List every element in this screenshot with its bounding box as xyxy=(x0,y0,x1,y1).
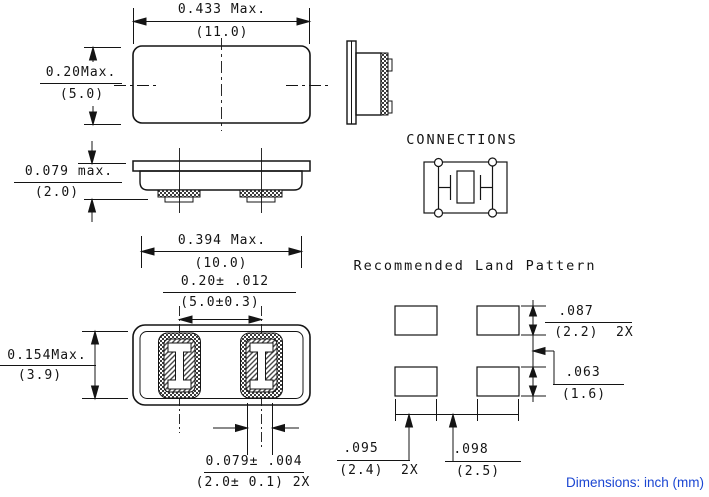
end-view xyxy=(347,41,392,124)
dim-bottom-height-inch: 0.154Max. xyxy=(7,348,86,363)
pin-circle xyxy=(435,209,443,217)
dim-top-height-inch: 0.20Max. xyxy=(46,65,117,80)
dim-top-width-inch: 0.433 Max. xyxy=(178,2,266,17)
dim-land-col-gap-inch: .098 xyxy=(453,442,488,457)
dim-side-height-lines xyxy=(14,141,148,222)
dim-side-height-mm: (2.0) xyxy=(35,185,79,200)
dim-bottom-width-inch: 0.394 Max. xyxy=(178,233,266,248)
dim-land-pad-height-mm: (2.2) 2X xyxy=(554,325,633,340)
land-pad xyxy=(395,367,437,396)
dim-land-pad-width-inch: .095 xyxy=(343,441,378,456)
dim-pad-width-mm: (2.0± 0.1) 2X xyxy=(196,475,311,490)
land-pattern xyxy=(395,306,519,396)
connections-schematic xyxy=(424,158,507,217)
side-pad-left xyxy=(158,190,200,197)
pin-circle xyxy=(489,209,497,217)
dim-bottom-height-mm: (3.9) xyxy=(18,368,62,383)
dim-side-height-inch: 0.079 max. xyxy=(25,164,113,179)
dim-top-height-mm: (5.0) xyxy=(60,87,104,102)
units-note: Dimensions: inch (mm) xyxy=(566,475,704,490)
dim-top-width-mm: (11.0) xyxy=(196,25,249,40)
dim-top-height-lines xyxy=(40,48,122,125)
dim-land-row-gap-inch: .063 xyxy=(565,365,600,380)
connections-title: CONNECTIONS xyxy=(406,132,517,148)
bottom-pad-left xyxy=(159,333,201,398)
land-pattern-title: Recommended Land Pattern xyxy=(353,258,596,274)
dim-land-row-gap-mm: (1.6) xyxy=(562,387,606,402)
dim-land-pad-height-inch: .087 xyxy=(558,304,593,319)
dim-pad-pitch-inch: 0.20± .012 xyxy=(181,274,269,289)
top-view xyxy=(114,38,330,131)
pin-circle xyxy=(489,158,497,166)
dim-pad-pitch-mm: (5.0±0.3) xyxy=(180,295,259,310)
side-pad-right xyxy=(240,190,282,197)
dim-bottom-width-mm: (10.0) xyxy=(195,256,248,271)
pin-circle xyxy=(435,159,443,167)
land-pad xyxy=(477,367,519,396)
dim-pad-width-inch: 0.079± .004 xyxy=(205,454,302,469)
dim-bottom-height-lines xyxy=(0,332,128,399)
bottom-pad-right xyxy=(241,333,283,398)
side-view xyxy=(133,148,310,213)
dim-land-pad-width-mm: (2.4) 2X xyxy=(339,463,418,478)
crystal-symbol xyxy=(439,171,493,203)
land-pad xyxy=(477,306,519,335)
dim-land-col-gap-mm: (2.5) xyxy=(456,464,500,479)
bottom-view xyxy=(133,325,310,405)
package-drawing-page: 0.433 Max. (11.0) 0.20Max. (5.0) 0.079 m… xyxy=(0,0,709,497)
land-pad xyxy=(395,306,437,335)
